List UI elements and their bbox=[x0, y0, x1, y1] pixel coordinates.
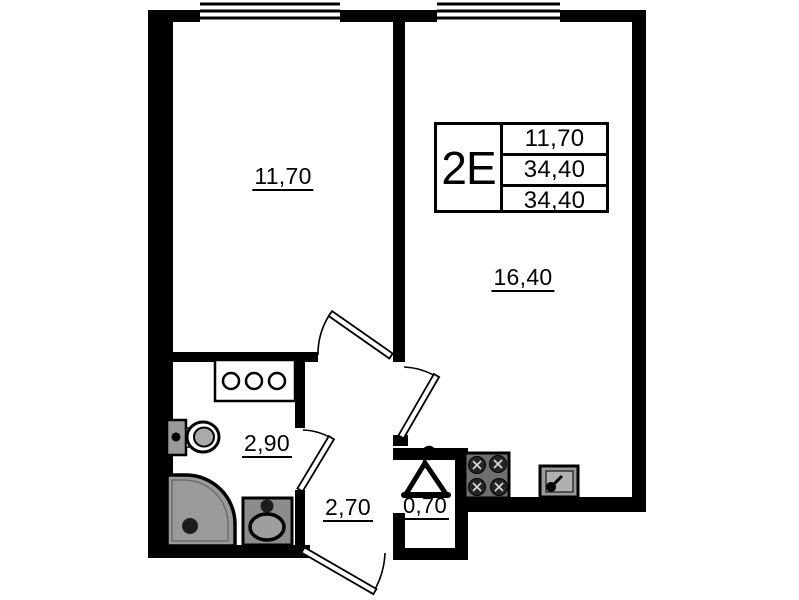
room-area-label-kitchen-living: 16,40 bbox=[491, 266, 554, 292]
kitchen-sink-icon bbox=[540, 466, 578, 497]
vanity-icon bbox=[215, 360, 295, 401]
stove-icon bbox=[465, 453, 509, 498]
room-area-label-wardrobe: 0,70 bbox=[401, 495, 449, 520]
wall-right bbox=[632, 10, 646, 510]
washbasin-icon bbox=[243, 498, 292, 545]
toilet-icon bbox=[167, 420, 219, 455]
unit-area: 34,40 bbox=[503, 153, 606, 184]
floor-plan: 11,70 16,40 2,90 2,70 0,70 2Е 11,70 34,4… bbox=[0, 0, 799, 600]
unit-type-label: 2Е bbox=[437, 125, 503, 210]
unit-info-stamp: 2Е 11,70 34,40 34,40 bbox=[434, 122, 609, 213]
door-swing-icon-bathroom bbox=[303, 430, 331, 438]
unit-total-area: 34,40 bbox=[503, 184, 606, 215]
unit-area-values: 11,70 34,40 34,40 bbox=[503, 125, 606, 210]
door-leaf-bathroom bbox=[297, 436, 334, 491]
room-area-label-hallway: 2,70 bbox=[323, 496, 373, 522]
door-swing-icon-bedroom bbox=[318, 314, 330, 355]
room-area-label-bedroom: 11,70 bbox=[252, 165, 313, 191]
unit-living-area: 11,70 bbox=[503, 125, 606, 153]
wall-bath-right-upper bbox=[295, 352, 305, 428]
window-icon-right bbox=[437, 2, 560, 22]
shower-icon bbox=[167, 475, 235, 546]
door-swing-icon-entrance bbox=[374, 553, 385, 591]
wall-bath-right-lower bbox=[295, 490, 305, 545]
wall-middle bbox=[393, 22, 405, 362]
wall-closet-left-lower bbox=[393, 513, 405, 560]
door-leaf-bedroom bbox=[329, 311, 393, 358]
floor-plan-drawing bbox=[0, 0, 799, 600]
room-area-label-bathroom: 2,90 bbox=[242, 432, 292, 458]
window-icon-left bbox=[200, 2, 340, 22]
door-leaf-kitchen bbox=[398, 374, 439, 438]
door-leaf-entrance bbox=[302, 547, 377, 594]
